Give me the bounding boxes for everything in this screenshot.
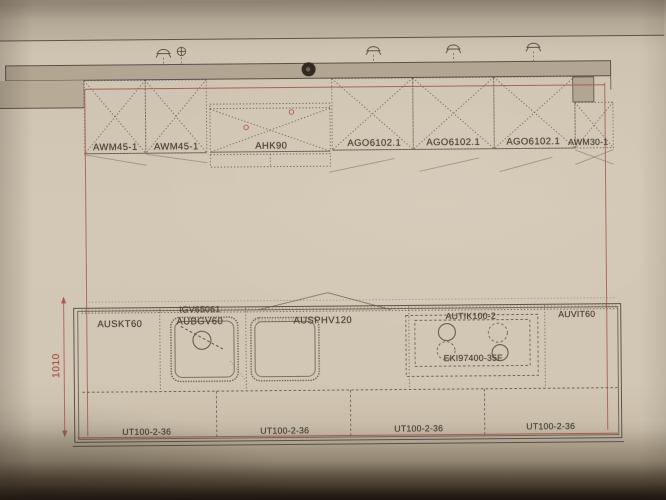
ceiling-light-icon (446, 45, 461, 53)
drawer-unit-label-ut100-d: UT100-2-36 (526, 422, 575, 431)
door-swing-lines (84, 154, 207, 166)
ceiling-light-icon (156, 49, 171, 57)
drawer-unit-label-ut100-a: UT100-2-36 (122, 428, 171, 437)
wall-unit-label-ago6102-c: AGO6102.1 (506, 137, 560, 147)
soffit-return-block (573, 77, 594, 102)
appliance-label-igv65061: IGV65061 (179, 305, 220, 314)
drawer-line (82, 388, 617, 393)
base-unit-label-aubgv60: AUBGV60 (176, 317, 223, 327)
burner-circle (488, 323, 507, 342)
base-unit-label-auskt60: AUSKT60 (97, 320, 142, 330)
wall-unit-label-ahk90: AHK90 (255, 142, 287, 152)
ceiling-light-icon (526, 43, 541, 51)
drawer-unit-label-ut100-c: UT100-2-36 (394, 424, 443, 433)
hood-cabinet-ahk90 (210, 103, 331, 167)
cooktop (406, 314, 539, 376)
kitchen-elevation-drawing: AWM45-1 AWM45-1 AHK90 AGO6102.1 AGO6102.… (0, 0, 666, 500)
wall-unit-label-awm45-1-a: AWM45-1 (93, 143, 138, 153)
hood-marker-dot (244, 125, 249, 130)
wall-unit-label-ago6102-a: AGO6102.1 (347, 139, 401, 149)
soffit-bar (6, 60, 611, 81)
appliance-label-eki97400-35f: EKI97400-35F (444, 354, 503, 363)
base-unit-label-ausphv120: AUSPHV120 (293, 316, 352, 326)
wall-cabinet-awm30-1 (573, 76, 614, 165)
sink-basin-right (230, 317, 320, 384)
dimension-text-1010: 1010 (52, 353, 62, 378)
hood-marker-dot (289, 110, 294, 115)
ceiling-light-icon (366, 47, 381, 55)
appliance-leader-line (181, 326, 223, 349)
wall-unit-label-awm30-1: AWM30-1 (568, 138, 608, 147)
photo-of-cad-drawing: AWM45-1 AWM45-1 AHK90 AGO6102.1 AGO6102.… (0, 0, 666, 500)
left-wall-block (0, 80, 84, 108)
junction-box-icon (177, 47, 185, 55)
wall-unit-label-awm45-1-b: AWM45-1 (154, 142, 199, 152)
wall-unit-label-ago6102-b: AGO6102.1 (426, 138, 480, 148)
drawer-unit-label-ut100-b: UT100-2-36 (260, 426, 309, 435)
base-unit-label-auvit60: AUVIT60 (558, 310, 595, 319)
drawer-unit-dividers (216, 389, 484, 437)
door-swing-lines (329, 157, 552, 173)
upper-wall-band (0, 0, 666, 41)
base-unit-label-autik100-2: AUTIK100-2 (446, 312, 496, 321)
burner-circle (438, 324, 455, 341)
